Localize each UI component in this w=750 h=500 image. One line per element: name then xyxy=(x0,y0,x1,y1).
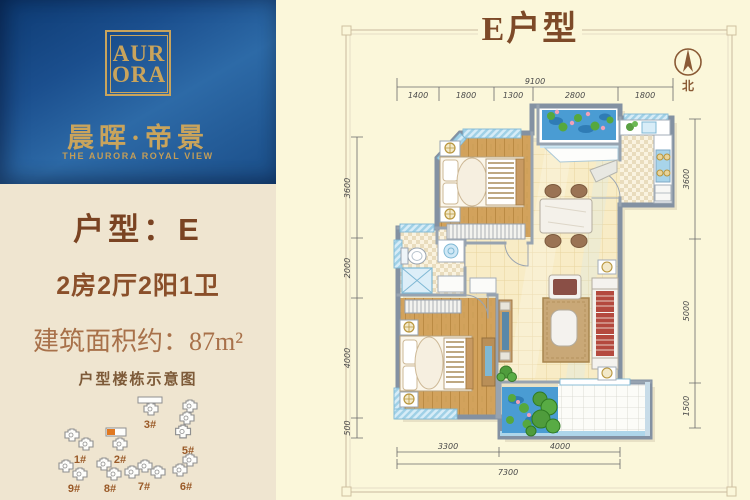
dim-top-total: 9100 xyxy=(525,77,545,86)
info-sidebar: AUR ORA 晨晖·帝景 THE AURORA ROYAL VIEW 户型：E… xyxy=(0,0,276,500)
dim-bottom-seg: 3300 xyxy=(438,442,458,451)
unit-type-label: 户型：E xyxy=(0,204,276,249)
dim-left-seg: 500 xyxy=(343,420,352,435)
dim-left-seg: 2000 xyxy=(343,258,352,278)
building-label: 6# xyxy=(164,481,208,493)
dim-right-seg: 3600 xyxy=(682,169,691,189)
brand-name-en: THE AURORA ROYAL VIEW xyxy=(0,151,276,161)
north-label: 北 xyxy=(682,78,694,93)
building-6: 6# xyxy=(164,452,208,493)
building-5: 5# xyxy=(166,398,210,457)
unit-area-label: 建筑面积约：87m² xyxy=(0,321,276,358)
logo-monogram-top: AUR xyxy=(113,43,166,64)
brand-card: AUR ORA 晨晖·帝景 THE AURORA ROYAL VIEW xyxy=(0,0,276,184)
logo-monogram-bottom: ORA xyxy=(112,64,166,85)
page: { "brand": { "monogram_top": "AUR", "mon… xyxy=(0,0,750,500)
plan-title: E户型 xyxy=(482,10,579,48)
north-arrow-icon: 北 xyxy=(675,49,701,93)
dim-bottom-seg: 4000 xyxy=(550,442,570,451)
building-9: 9# xyxy=(52,458,96,495)
living-room xyxy=(543,260,618,380)
flower-bed-balcony xyxy=(538,106,620,162)
dim-left-seg: 4000 xyxy=(343,348,352,368)
brand-name-cn: 晨晖·帝景 xyxy=(0,116,276,155)
building-label: 9# xyxy=(52,483,96,495)
dim-left-seg: 3600 xyxy=(343,178,352,198)
unit-layout-label: 2房2厅2阳1卫 xyxy=(0,266,276,302)
living-balcony xyxy=(502,387,560,436)
dim-top-seg: 1800 xyxy=(635,91,655,100)
floor-plan xyxy=(394,106,677,442)
dim-top-seg: 2800 xyxy=(565,91,585,100)
dim-top-seg: 1800 xyxy=(456,91,476,100)
dim-right-seg: 5000 xyxy=(682,301,691,321)
dim-top-seg: 1400 xyxy=(408,91,428,100)
dim-bottom-total: 7300 xyxy=(498,468,518,477)
balcony-tile-floor xyxy=(558,384,648,433)
dim-right-seg: 1500 xyxy=(682,396,691,416)
dim-top-seg: 1300 xyxy=(503,91,523,100)
aurora-logo: AUR ORA xyxy=(105,30,171,96)
building-diagram-title: 户型楼栋示意图 xyxy=(0,368,276,389)
